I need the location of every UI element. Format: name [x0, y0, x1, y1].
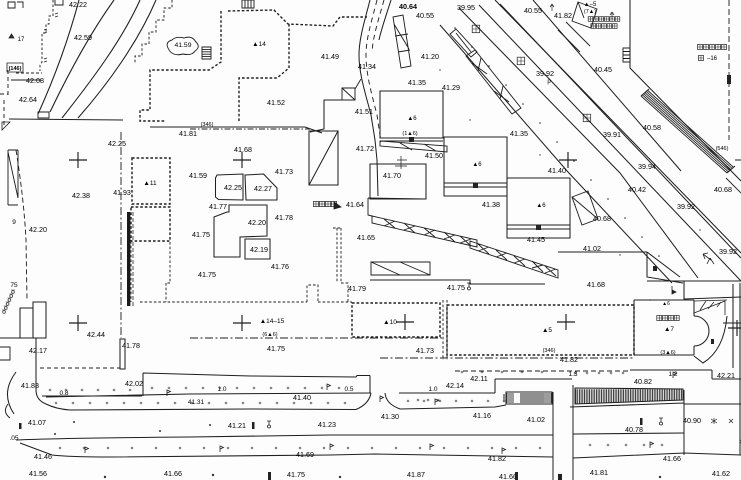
svg-text:42.19: 42.19	[250, 245, 268, 254]
svg-text:42.14: 42.14	[446, 381, 464, 390]
svg-text:▲14: ▲14	[252, 41, 266, 48]
svg-text:41.75: 41.75	[267, 344, 285, 353]
svg-text:41.81: 41.81	[590, 468, 608, 477]
svg-text:41.45: 41.45	[527, 235, 545, 244]
svg-text:41.31: 41.31	[188, 399, 205, 406]
svg-text:39.95: 39.95	[457, 3, 475, 12]
svg-text:41.73: 41.73	[416, 346, 434, 355]
svg-text:42.20: 42.20	[248, 218, 266, 227]
svg-text:41.23: 41.23	[318, 420, 336, 429]
svg-text:▲6: ▲6	[536, 203, 546, 209]
svg-text:40.55: 40.55	[416, 11, 434, 20]
svg-text:41.62: 41.62	[712, 469, 730, 478]
svg-text:42.44: 42.44	[87, 330, 105, 339]
svg-text:41.77: 41.77	[209, 202, 227, 211]
svg-text:▲7: ▲7	[664, 326, 674, 333]
svg-text:41.59: 41.59	[174, 42, 191, 49]
svg-text:41.65: 41.65	[357, 233, 375, 242]
svg-text:41.68: 41.68	[587, 280, 605, 289]
svg-text:▲10: ▲10	[383, 319, 397, 326]
svg-text:41.02: 41.02	[527, 415, 545, 424]
svg-text:41.79: 41.79	[348, 284, 366, 293]
svg-text:41.07: 41.07	[28, 418, 46, 427]
svg-text:41.46: 41.46	[34, 452, 52, 461]
svg-text:41.50: 41.50	[425, 151, 443, 160]
svg-text:41.73: 41.73	[275, 167, 293, 176]
svg-text:9: 9	[12, 219, 16, 226]
svg-text:41.70: 41.70	[383, 171, 401, 180]
svg-text:▲5: ▲5	[542, 327, 552, 334]
svg-text:40.82: 40.82	[634, 377, 652, 386]
svg-text:40.45: 40.45	[594, 65, 612, 74]
svg-text:41.72: 41.72	[356, 144, 374, 153]
svg-text:41.29: 41.29	[442, 83, 460, 92]
svg-text:40.42: 40.42	[628, 185, 646, 194]
svg-text:▲6: ▲6	[472, 162, 482, 168]
svg-text:41.40: 41.40	[293, 393, 311, 402]
svg-text:41.76: 41.76	[271, 262, 289, 271]
svg-text:41.66: 41.66	[499, 472, 517, 480]
svg-text:▲11: ▲11	[143, 180, 157, 187]
svg-text:(546): (546)	[716, 146, 729, 152]
svg-text:42.25: 42.25	[108, 139, 126, 148]
svg-text:(3▲6): (3▲6)	[660, 350, 675, 356]
svg-text:40.55: 40.55	[524, 6, 542, 15]
svg-text:41.38: 41.38	[482, 200, 500, 209]
svg-text:41.30: 41.30	[381, 412, 399, 421]
svg-text:41.59: 41.59	[189, 171, 207, 180]
svg-text:42.11: 42.11	[470, 374, 487, 383]
svg-text:41.82: 41.82	[560, 355, 578, 364]
svg-text:41.35: 41.35	[510, 129, 528, 138]
svg-text:40.90: 40.90	[683, 416, 701, 425]
svg-text:42.17: 42.17	[29, 346, 47, 355]
svg-text:75: 75	[10, 282, 18, 289]
svg-text:41.34: 41.34	[358, 62, 376, 71]
svg-text:–16: –16	[707, 56, 718, 62]
svg-text:42.64: 42.64	[19, 95, 37, 104]
svg-text:42.08: 42.08	[26, 76, 44, 85]
svg-text:41.82: 41.82	[488, 454, 506, 463]
svg-text:0.5: 0.5	[344, 386, 353, 393]
svg-text:41.75: 41.75	[192, 230, 210, 239]
svg-text:41.81: 41.81	[179, 129, 197, 138]
svg-text:42.27: 42.27	[254, 184, 272, 193]
svg-text:1.0: 1.0	[217, 386, 226, 393]
svg-text:▲6: ▲6	[407, 116, 417, 122]
svg-text:39.92: 39.92	[677, 202, 695, 211]
svg-text:39.92: 39.92	[536, 69, 554, 78]
svg-text:40.68: 40.68	[714, 185, 732, 194]
svg-text:▲6: ▲6	[662, 301, 670, 307]
svg-text:41.75: 41.75	[447, 283, 465, 292]
svg-text:40.58: 40.58	[643, 123, 661, 132]
svg-text:42.59: 42.59	[74, 33, 92, 42]
svg-text:1.0: 1.0	[428, 386, 437, 393]
svg-text:41.52: 41.52	[267, 98, 285, 107]
svg-text:41.87: 41.87	[407, 470, 425, 479]
svg-text:1.3: 1.3	[568, 371, 577, 378]
svg-text:41.93: 41.93	[113, 190, 131, 197]
svg-text:.05: .05	[9, 435, 18, 442]
svg-text:0.8: 0.8	[59, 390, 68, 397]
svg-text:(346): (346)	[201, 122, 214, 128]
svg-text:41.40: 41.40	[548, 166, 566, 175]
svg-text:41.68: 41.68	[234, 145, 252, 154]
svg-text:41.21: 41.21	[228, 421, 246, 430]
svg-text:40.64: 40.64	[399, 2, 417, 11]
svg-text:41.16: 41.16	[473, 411, 491, 420]
svg-text:41.82: 41.82	[554, 11, 572, 20]
svg-text:41.66: 41.66	[663, 454, 681, 463]
svg-text:41.69: 41.69	[296, 450, 314, 459]
svg-text:41.75: 41.75	[198, 270, 216, 279]
svg-text:41.75: 41.75	[287, 470, 305, 479]
svg-text:40.78: 40.78	[625, 425, 643, 434]
svg-text:42.21: 42.21	[717, 371, 735, 380]
svg-text:▲14–15: ▲14–15	[260, 318, 285, 325]
svg-text:(146): (146)	[9, 66, 22, 72]
svg-text:41.66: 41.66	[164, 469, 182, 478]
svg-text:39.94: 39.94	[638, 162, 656, 171]
svg-text:41.64: 41.64	[346, 200, 364, 209]
svg-text:42.38: 42.38	[72, 191, 90, 200]
svg-text:41.83: 41.83	[21, 381, 39, 390]
svg-text:41.51: 41.51	[355, 107, 373, 116]
svg-text:41.78: 41.78	[275, 213, 293, 222]
svg-text:42.02: 42.02	[125, 379, 143, 388]
svg-text:40.68: 40.68	[593, 214, 611, 223]
svg-text:39.92: 39.92	[719, 247, 737, 256]
svg-text:(7▲): (7▲)	[584, 9, 596, 15]
svg-text:▲–5: ▲–5	[584, 2, 597, 8]
svg-text:41.35: 41.35	[408, 78, 426, 87]
svg-text:(346): (346)	[543, 348, 556, 354]
svg-text:17: 17	[18, 37, 25, 43]
svg-text:41.20: 41.20	[421, 52, 439, 61]
svg-text:41.78: 41.78	[122, 341, 140, 350]
svg-text:42.25: 42.25	[224, 183, 242, 192]
svg-text:42.20: 42.20	[29, 225, 47, 234]
svg-text:(1▲6): (1▲6)	[402, 131, 417, 137]
svg-text:39.91: 39.91	[603, 130, 621, 139]
svg-text:41.49: 41.49	[321, 52, 339, 61]
svg-text:41.56: 41.56	[29, 469, 47, 478]
svg-text:(6▲6): (6▲6)	[262, 332, 277, 338]
